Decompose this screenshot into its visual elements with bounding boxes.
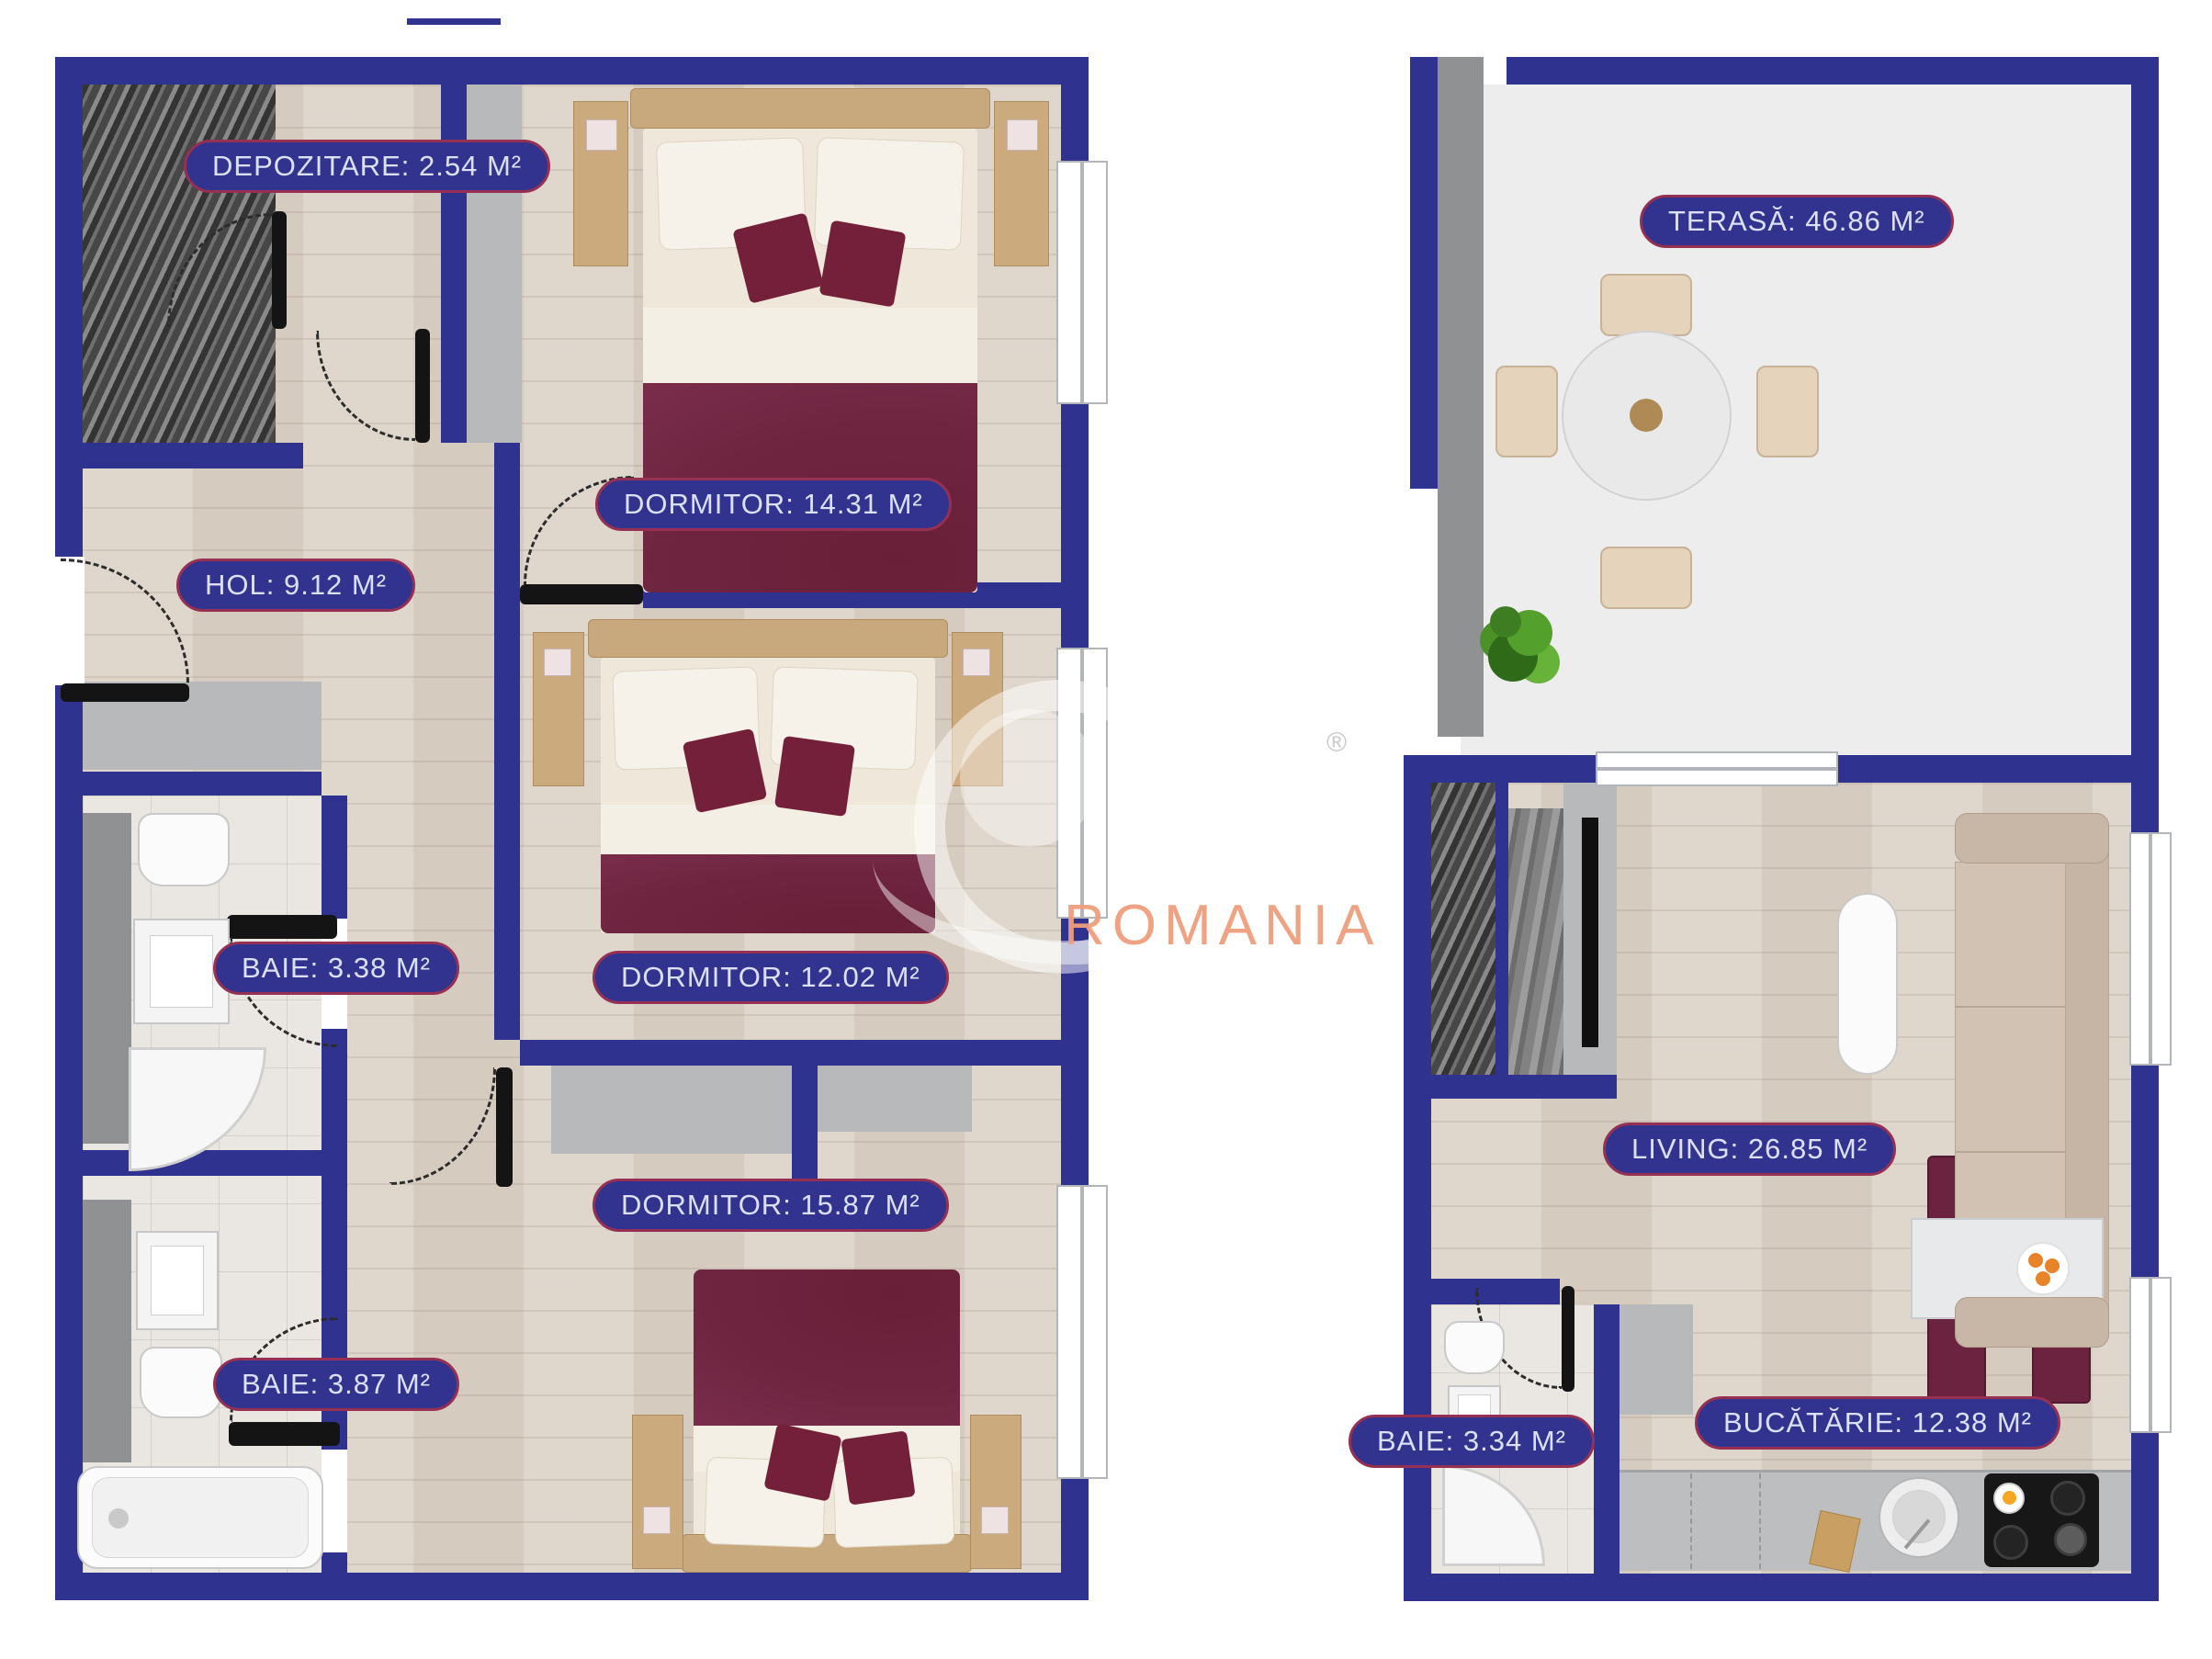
drain <box>108 1508 129 1529</box>
wall <box>494 443 520 1040</box>
door-leaf <box>227 915 337 939</box>
plant <box>1490 606 1521 638</box>
table-center <box>1630 399 1663 432</box>
nightstand <box>970 1415 1021 1569</box>
wall <box>520 1040 1061 1066</box>
wall <box>2131 57 2159 755</box>
burner <box>2054 1523 2087 1556</box>
wall <box>1594 1304 1619 1574</box>
cabinet-divider <box>1690 1473 1692 1569</box>
room-label-bucatarie: BUCĂTĂRIE: 12.38 M² <box>1695 1396 2060 1450</box>
sofa-armrest <box>1955 1297 2109 1348</box>
wall-niche <box>1619 1304 1693 1415</box>
wall-niche <box>818 1066 972 1132</box>
door-leaf <box>229 1422 340 1446</box>
toilet <box>140 1347 222 1418</box>
kitchen-sink-basin <box>1892 1490 1946 1543</box>
lamp <box>981 1507 1009 1534</box>
door-leaf <box>61 683 189 702</box>
wall <box>1404 755 1431 1601</box>
wall <box>81 443 303 468</box>
door-leaf <box>1562 1286 1574 1392</box>
wall <box>1507 57 2159 85</box>
wall-niche <box>81 813 131 1144</box>
bed-sheet <box>643 308 977 383</box>
divider <box>407 18 501 25</box>
wall <box>1431 1075 1617 1099</box>
nightstand <box>632 1415 683 1569</box>
door-opening <box>322 1450 347 1552</box>
bed-headboard <box>630 88 990 129</box>
wall-niche <box>467 85 522 443</box>
window <box>1596 751 1838 786</box>
room-label-dormitor-3: DORMITOR: 15.87 M² <box>592 1179 949 1232</box>
cushion <box>774 736 855 817</box>
room-label-dormitor-2: DORMITOR: 12.02 M² <box>592 951 949 1004</box>
wall <box>1404 1574 2159 1601</box>
egg-yolk <box>2003 1491 2016 1505</box>
window <box>2129 832 2172 1066</box>
chair <box>1495 366 1558 457</box>
room-label-hol: HOL: 9.12 M² <box>176 559 415 612</box>
door-leaf <box>272 211 287 329</box>
door-leaf <box>520 584 643 604</box>
room-label-terasa: TERASĂ: 46.86 M² <box>1640 195 1954 248</box>
room-label-baie-3: BAIE: 3.34 M² <box>1349 1415 1595 1468</box>
chair <box>1756 366 1819 457</box>
cushion <box>841 1430 915 1505</box>
door-leaf <box>415 329 430 443</box>
window <box>1056 161 1108 404</box>
room-label-depozitare: DEPOZITARE: 2.54 M² <box>184 140 550 193</box>
registered-mark: ® <box>1326 728 1347 759</box>
wall <box>55 1573 1089 1600</box>
wall <box>441 85 467 443</box>
lamp <box>544 649 571 676</box>
sofa-cushion <box>1955 862 2067 1007</box>
lamp <box>963 649 990 676</box>
plate <box>2016 1242 2070 1295</box>
wall <box>81 772 322 796</box>
window <box>1056 1185 1108 1479</box>
wall <box>55 57 83 1600</box>
lamp <box>1007 119 1038 151</box>
chair <box>1600 547 1692 609</box>
cushion <box>683 728 768 814</box>
sink-basin <box>151 1246 204 1315</box>
lamp <box>643 1507 671 1534</box>
wall <box>1495 783 1508 1075</box>
wall-niche <box>551 1066 792 1154</box>
room-label-living: LIVING: 26.85 M² <box>1603 1123 1896 1176</box>
coffee-table <box>1837 893 1898 1075</box>
chair <box>1600 274 1692 336</box>
room-label-baie-2: BAIE: 3.87 M² <box>213 1358 459 1411</box>
toilet <box>138 813 230 886</box>
burner <box>1993 1525 2028 1560</box>
window <box>2129 1277 2172 1433</box>
door-leaf <box>496 1067 513 1187</box>
wall-niche <box>81 1200 131 1462</box>
floor-plan-canvas: DEPOZITARE: 2.54 M² DORMITOR: 14.31 M² H… <box>0 0 2212 1659</box>
fruit <box>2028 1253 2043 1268</box>
wall <box>1410 57 1438 489</box>
room-label-dormitor-1: DORMITOR: 14.31 M² <box>595 478 952 531</box>
fruit <box>2045 1258 2060 1273</box>
bed-blanket <box>694 1270 960 1426</box>
wall <box>792 1066 818 1189</box>
lamp <box>586 119 617 151</box>
watermark-text: ROMANIA <box>1064 893 1381 958</box>
cushion <box>819 220 907 308</box>
burner <box>2050 1481 2085 1516</box>
wall <box>81 1150 347 1176</box>
sofa-cushion <box>1955 1007 2067 1152</box>
bed-headboard <box>588 619 948 658</box>
cushion <box>763 1423 841 1501</box>
wardrobe <box>1508 808 1563 1075</box>
sofa-armrest <box>1955 813 2109 863</box>
fruit <box>2036 1271 2050 1286</box>
sink-basin <box>150 935 213 1008</box>
tv <box>1582 818 1598 1047</box>
room-label-baie-1: BAIE: 3.38 M² <box>213 942 459 995</box>
wardrobe <box>1431 783 1495 1075</box>
cabinet-divider <box>1759 1473 1761 1569</box>
wall <box>55 57 1089 85</box>
toilet <box>1444 1321 1505 1374</box>
wall-niche <box>1438 57 1484 737</box>
